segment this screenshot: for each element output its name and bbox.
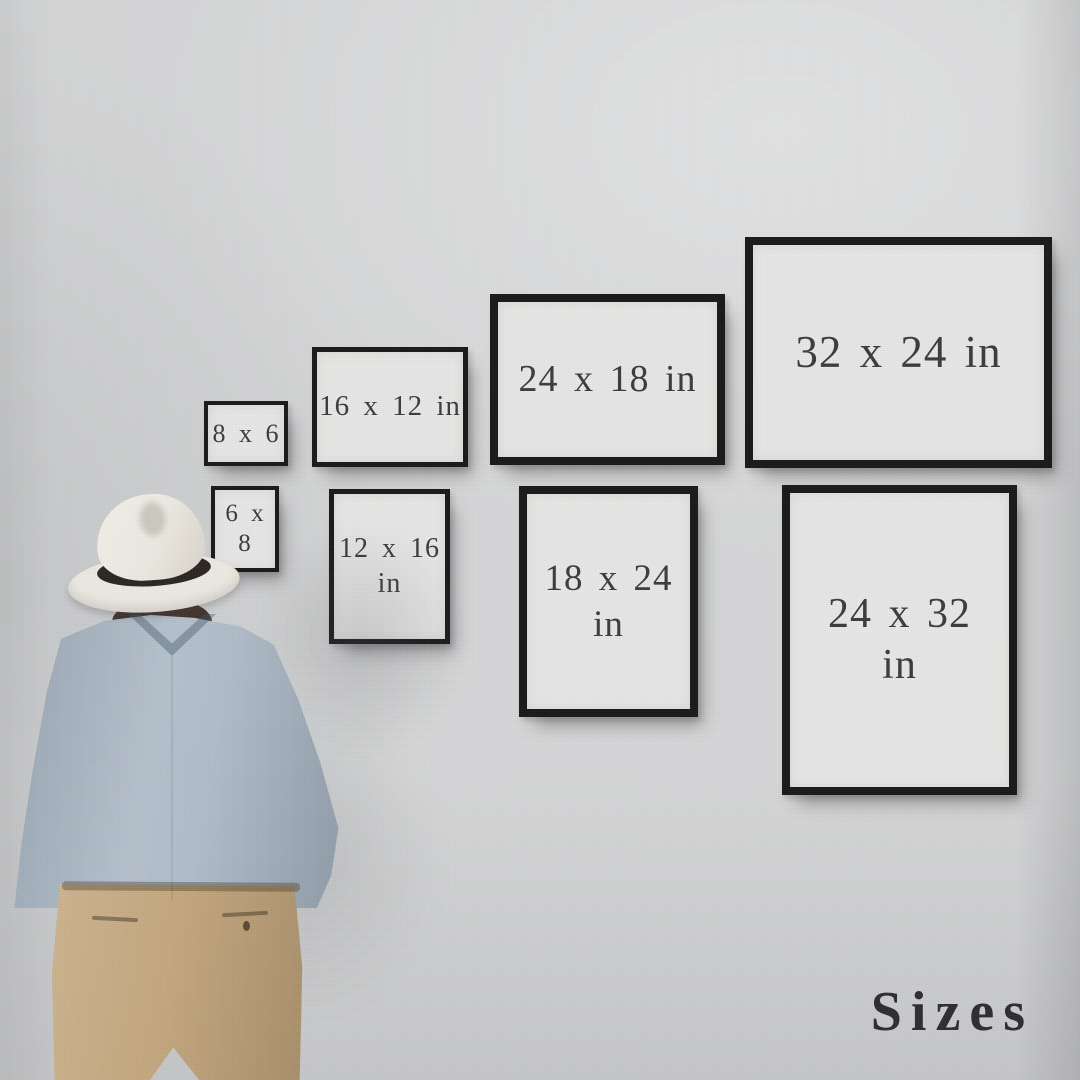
wall-scene: 8 x 616 x 12 in24 x 18 in32 x 24 in6 x 8… (0, 0, 1080, 1080)
trousers-shading (52, 876, 310, 1080)
man-figure (0, 0, 1080, 1080)
trousers-waistband (62, 881, 300, 892)
shirt-back-seam (171, 656, 173, 900)
man-trousers (52, 876, 310, 1080)
shirt-shading (0, 612, 360, 908)
man-fedora-hat (60, 486, 248, 626)
trousers-pocket-button (243, 921, 250, 931)
man-shirt (0, 612, 360, 908)
